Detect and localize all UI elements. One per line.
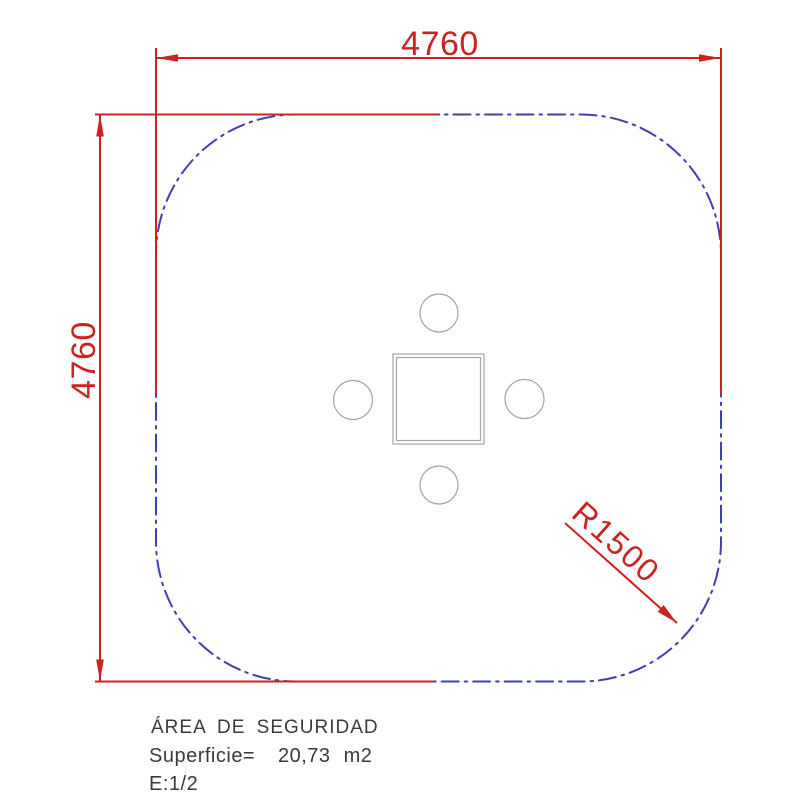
height-dimension-label: 4760: [65, 321, 103, 399]
equipment-base-inner-square: [397, 358, 481, 441]
surface-value-text: 20,73 m2: [278, 745, 372, 767]
equipment-post-right: [505, 380, 544, 419]
width-dimension-label: 4760: [401, 25, 479, 63]
safety-area-drawing: 4760 4760 R1500 ÁREA DE SEGURIDAD Superf…: [0, 0, 800, 800]
equipment-post-bottom: [420, 466, 458, 504]
height-arrow-bottom-icon: [96, 660, 104, 682]
equipment-post-left: [334, 381, 373, 420]
area-title-text: ÁREA DE SEGURIDAD: [151, 717, 379, 738]
equipment-post-top: [420, 294, 458, 332]
cad-drawing-page: 4760 4760 R1500 ÁREA DE SEGURIDAD Superf…: [0, 0, 800, 800]
height-dimension-group: 4760: [65, 115, 440, 682]
radius-dimension-label: R1500: [565, 494, 667, 590]
width-arrow-left-icon: [156, 54, 178, 62]
equipment-plan-group: [334, 294, 545, 504]
equipment-base-outer-square: [393, 354, 484, 444]
safety-area-boundary-outline: [156, 115, 721, 682]
surface-label-text: Superficie=: [149, 745, 255, 767]
scale-text: E:1/2: [149, 773, 198, 795]
notes-block: ÁREA DE SEGURIDAD Superficie= 20,73 m2 E…: [149, 717, 379, 795]
radius-dimension-group: R1500: [565, 494, 677, 623]
width-arrow-right-icon: [699, 54, 721, 62]
width-dimension-group: 4760: [156, 25, 721, 394]
height-arrow-top-icon: [96, 115, 104, 137]
